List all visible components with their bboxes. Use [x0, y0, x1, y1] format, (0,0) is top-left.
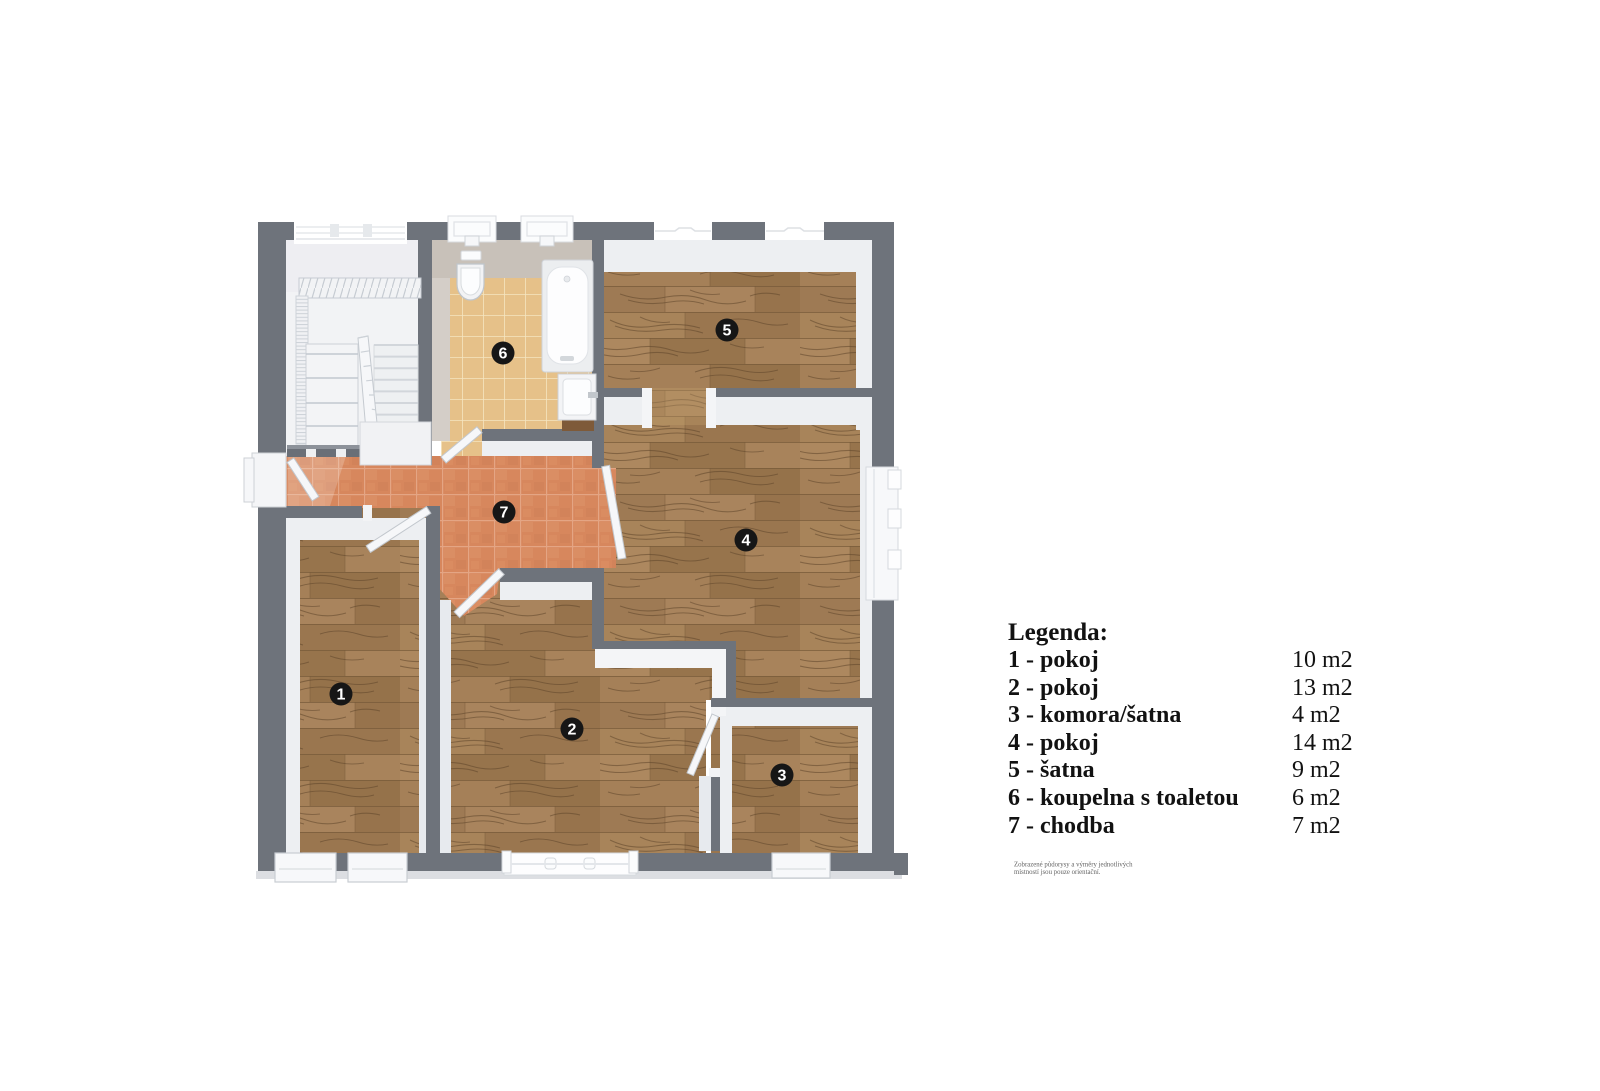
svg-text:6: 6 — [499, 346, 508, 363]
svg-text:5: 5 — [723, 323, 732, 340]
svg-text:4: 4 — [742, 533, 751, 550]
svg-text:1: 1 — [337, 687, 346, 704]
svg-text:3: 3 — [778, 768, 787, 785]
svg-text:7: 7 — [500, 505, 509, 522]
svg-text:2: 2 — [568, 722, 577, 739]
